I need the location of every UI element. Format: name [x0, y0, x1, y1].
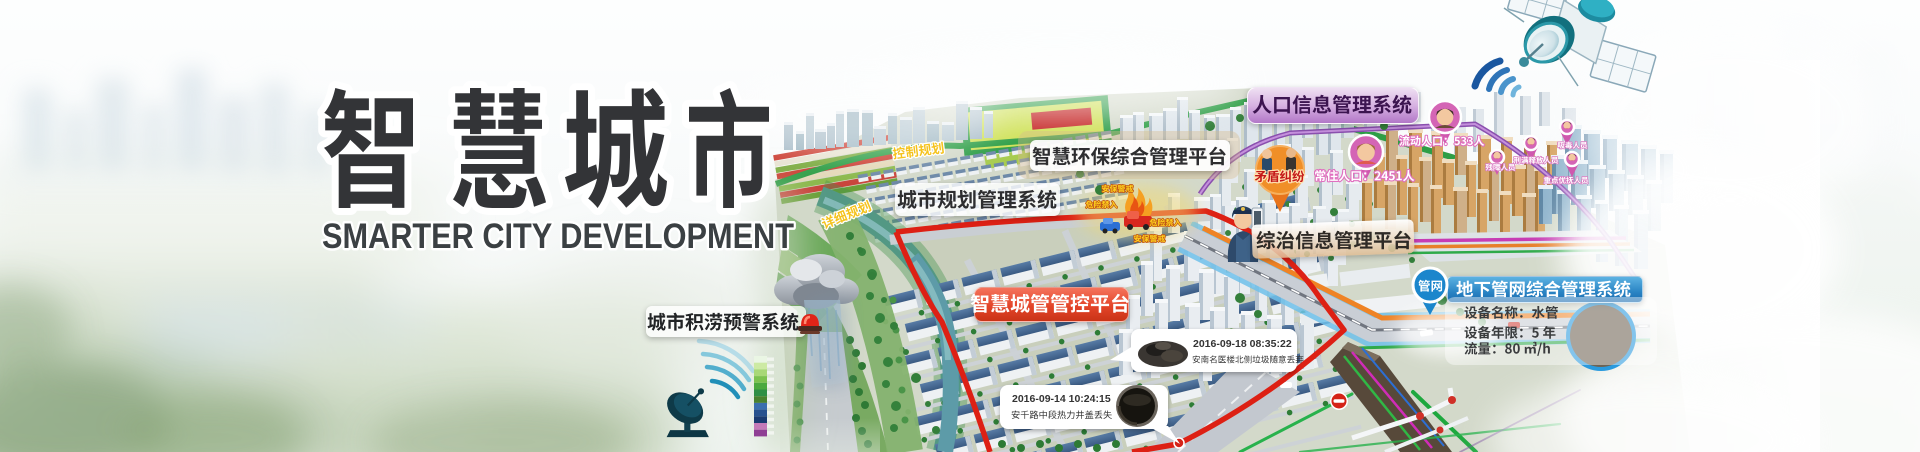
svg-text:SMARTER CITY DEVELOPMENT: SMARTER CITY DEVELOPMENT [322, 217, 794, 256]
